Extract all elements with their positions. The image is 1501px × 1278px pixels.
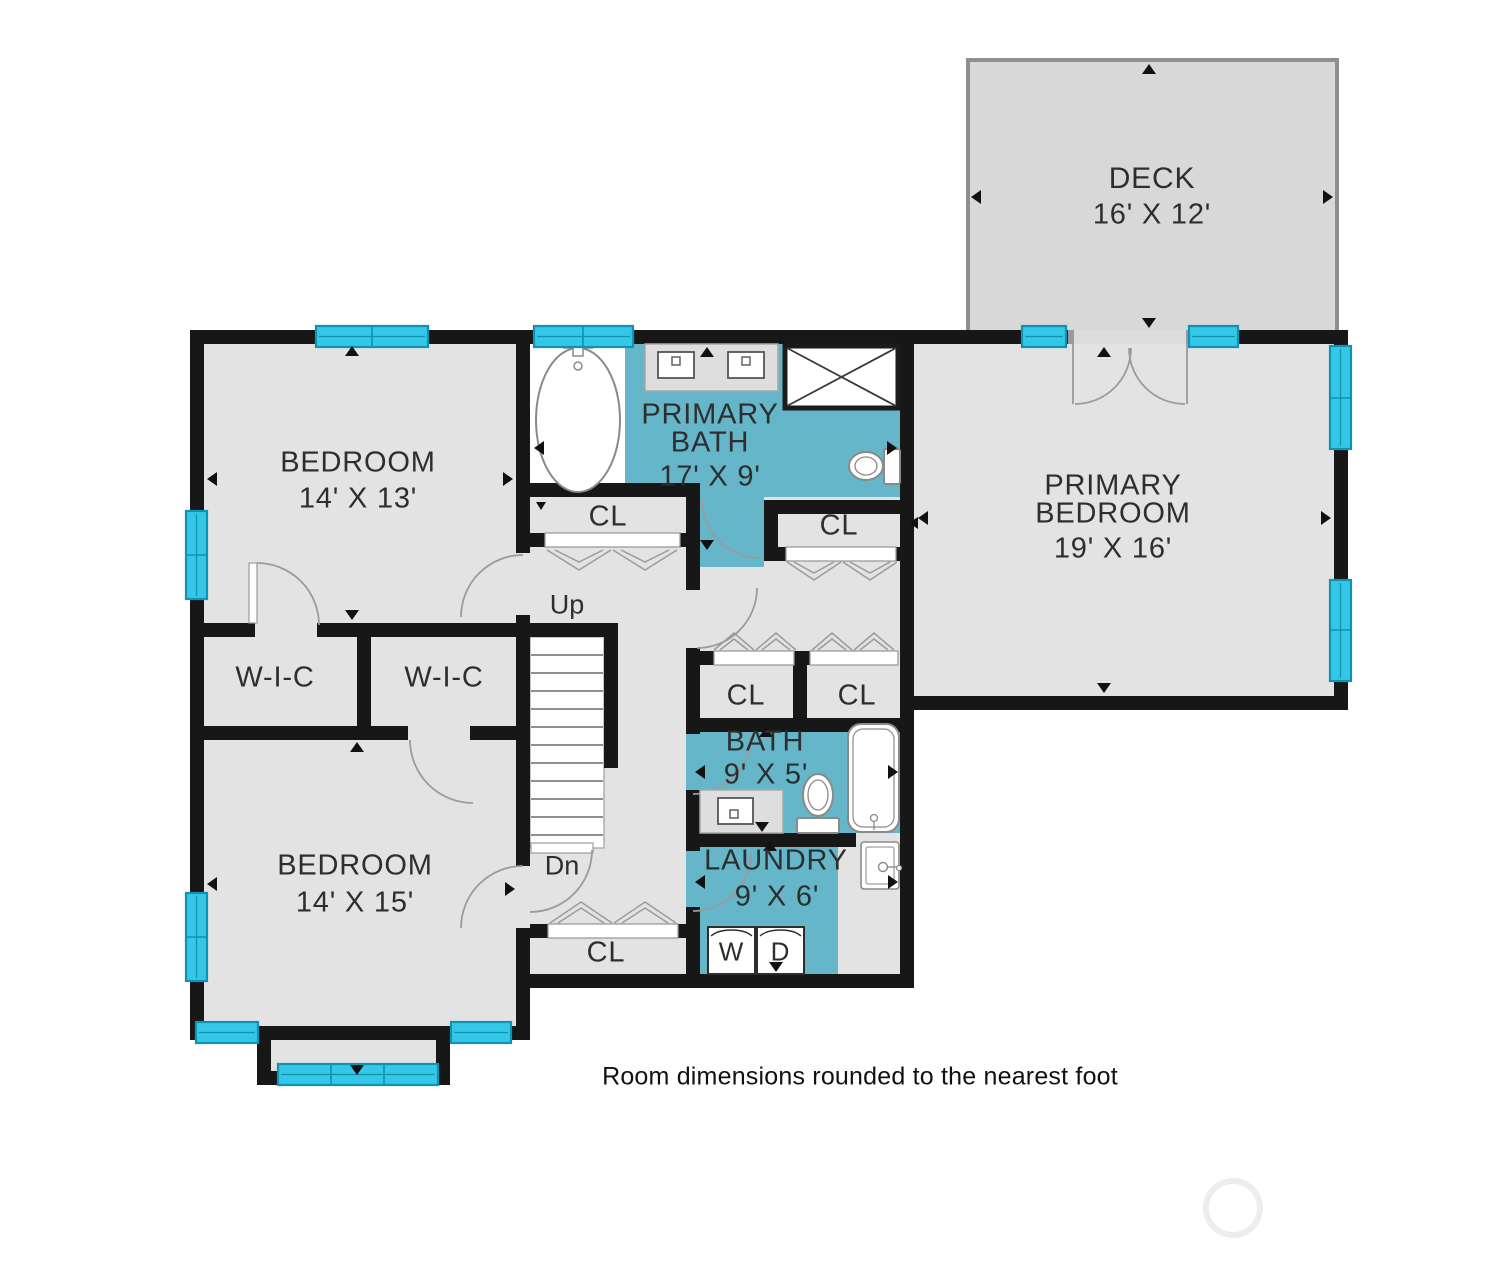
closet-bottom-label: CL bbox=[587, 937, 626, 970]
window bbox=[196, 1022, 258, 1043]
bedroom-bottom-dims: 14' X 15' bbox=[296, 887, 414, 920]
window bbox=[186, 511, 207, 599]
bedroom-top-label: BEDROOM bbox=[280, 447, 435, 480]
primary-bedroom-label-line2: BEDROOM bbox=[1035, 498, 1190, 531]
washer-label: W bbox=[719, 937, 744, 968]
dryer-label: D bbox=[771, 937, 790, 968]
watermark-circle bbox=[1206, 1181, 1260, 1235]
toilet-icon bbox=[849, 449, 900, 484]
window bbox=[1022, 326, 1066, 347]
bath-vanity bbox=[700, 790, 783, 833]
stairs-down-label: Dn bbox=[545, 851, 580, 882]
bedroom-bottom-label: BEDROOM bbox=[277, 850, 432, 883]
primary-bath-entry-floor bbox=[700, 497, 764, 567]
deck-dims: 16' X 12' bbox=[1093, 199, 1211, 232]
wic-right-label: W-I-C bbox=[404, 662, 483, 695]
stairs-up-label: Up bbox=[550, 590, 585, 621]
shower-icon bbox=[785, 346, 898, 408]
closet-mid-left-label: CL bbox=[727, 680, 766, 713]
wic-left-label: W-I-C bbox=[235, 662, 314, 695]
bath-label: BATH bbox=[726, 726, 804, 759]
primary-bath-dims: 17' X 9' bbox=[659, 461, 760, 494]
laundry-label: LAUNDRY bbox=[704, 845, 848, 878]
floor-plan: DECK 16' X 12' BEDROOM 14' X 13' PRIMARY… bbox=[0, 0, 1501, 1278]
primary-bath-label-line2: BATH bbox=[671, 427, 749, 460]
closet-mid-right-label: CL bbox=[838, 680, 877, 713]
bathtub-icon bbox=[848, 724, 899, 832]
deck-door-opening bbox=[1073, 330, 1187, 344]
deck-floor bbox=[968, 60, 1337, 334]
plan-note: Room dimensions rounded to the nearest f… bbox=[602, 1063, 1118, 1092]
bedroom-top-dims: 14' X 13' bbox=[299, 483, 417, 516]
primary-bedroom-dims: 19' X 16' bbox=[1054, 533, 1172, 566]
closet-upper-right-label: CL bbox=[820, 510, 859, 543]
closet-upper-left-label: CL bbox=[589, 501, 628, 534]
deck-label: DECK bbox=[1109, 162, 1196, 196]
window bbox=[1189, 326, 1238, 347]
window bbox=[316, 326, 428, 347]
window bbox=[186, 893, 207, 981]
sink-icon bbox=[718, 798, 753, 824]
window bbox=[1330, 346, 1351, 449]
window bbox=[451, 1022, 511, 1043]
window bbox=[534, 326, 633, 347]
window bbox=[1330, 580, 1351, 681]
laundry-dims: 9' X 6' bbox=[735, 881, 819, 914]
bath-dims: 9' X 5' bbox=[724, 759, 808, 792]
primary-vanity bbox=[645, 344, 778, 391]
